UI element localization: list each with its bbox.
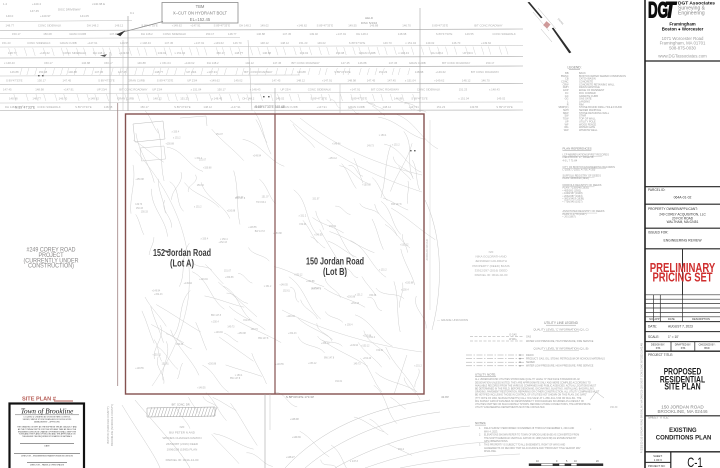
svg-text:QUALITY LEVEL 'C' INFORMATION: QUALITY LEVEL 'C' INFORMATION (Q.L.C): [533, 328, 588, 332]
svg-text:THIS PROPERTY IS SUBJECT T: THIS PROPERTY IS SUBJECT TO ALL EASEMENT…: [484, 444, 565, 447]
svg-text:146.88: 146.88: [297, 70, 306, 74]
svg-text:BE DETERMINED IN THE FIELD.: BE DETERMINED IN THE FIELD. BEFORE DESIG…: [475, 388, 595, 391]
svg-text:x140.98 E: x140.98 E: [92, 2, 105, 6]
svg-text:147.45: 147.45: [273, 61, 282, 65]
svg-text:150.33: 150.33: [176, 344, 184, 346]
svg-text:SCALE:: SCALE:: [648, 335, 659, 339]
svg-text:S 89°47'33"E: S 89°47'33"E: [411, 97, 428, 101]
svg-text:+149.94: +149.94: [332, 144, 341, 146]
svg-text:147.45: 147.45: [30, 9, 39, 13]
svg-text:146.88: 146.88: [262, 51, 271, 55]
svg-text:+153.12: +153.12: [294, 275, 303, 277]
svg-text:+148.98: +148.98: [290, 418, 299, 421]
svg-text:149.02: 149.02: [497, 97, 506, 101]
svg-text:BIT. CONC. DR.: BIT. CONC. DR.: [172, 403, 191, 407]
svg-text:UTILITY NOTE:: UTILITY NOTE:: [475, 373, 496, 377]
svg-text:147.45: 147.45: [63, 79, 72, 83]
svg-text:DIRECTOR – ENGINEERING/TRANS: DIRECTOR – ENGINEERING/TRANSPORTATION DI…: [21, 454, 73, 457]
svg-text:151.23: 151.23: [180, 97, 189, 101]
svg-text:149.73: 149.73: [135, 204, 143, 206]
svg-text:149.02: 149.02: [309, 32, 318, 36]
svg-text:+148.55: +148.55: [135, 368, 144, 370]
svg-text:151.23: 151.23: [437, 105, 446, 109]
svg-text:141.05: 141.05: [80, 14, 89, 18]
svg-text:BIT CONC ROADWAY: BIT CONC ROADWAY: [442, 61, 470, 65]
svg-text:151.07: 151.07: [262, 197, 270, 199]
svg-text:— GRADE UNKNOWN: — GRADE UNKNOWN: [437, 318, 468, 322]
svg-text:ELEVATIONS SHOWN REFER TO: ELEVATIONS SHOWN REFER TO TOWN OF BROOKL…: [484, 434, 579, 437]
svg-text:146.88: 146.88: [10, 70, 19, 74]
svg-text:(Lot B): (Lot B): [323, 267, 347, 278]
svg-text:x 148.43: x 148.43: [4, 61, 15, 65]
svg-text:JENNIFER GOLDRATH: JENNIFER GOLDRATH: [475, 259, 507, 263]
svg-text:CONC SIDEWALK: CONC SIDEWALK: [163, 32, 186, 36]
svg-text:+147.91: +147.91: [322, 79, 333, 83]
svg-text:149.73: 149.73: [251, 329, 259, 331]
svg-text:149.02: 149.02: [300, 51, 309, 55]
svg-text:GRAN CURB: GRAN CURB: [359, 51, 376, 55]
svg-text:149.02: 149.02: [234, 79, 243, 83]
svg-text:+150.88: +150.88: [237, 333, 246, 335]
svg-text:BROOKLINE, MA 02446: BROOKLINE, MA 02446: [657, 409, 707, 414]
svg-text:+150.88: +150.88: [405, 283, 414, 285]
svg-text:149.02: 149.02: [260, 24, 269, 28]
svg-text:+149.94: +149.94: [350, 345, 359, 347]
svg-text:149.73: 149.73: [354, 363, 362, 365]
svg-text:UP 23/4: UP 23/4: [463, 51, 473, 55]
svg-text:DESCRIPTION: DESCRIPTION: [692, 317, 710, 321]
svg-text:148.12: 148.12: [280, 41, 289, 45]
svg-text:x 151.04: x 151.04: [160, 61, 171, 65]
svg-text:+153.12: +153.12: [328, 158, 337, 160]
svg-text:DISC DRIVEWAY: DISC DRIVEWAY: [58, 8, 81, 12]
svg-text:148.98: 148.98: [35, 88, 44, 92]
svg-text:151.23: 151.23: [2, 41, 11, 45]
svg-text:DH 148.2: DH 148.2: [356, 32, 368, 36]
svg-text:ALL UNDERGROUND UTILITIES SHOW: ALL UNDERGROUND UTILITIES SHOWN ARE QUAL…: [475, 378, 580, 381]
svg-text:THE AS-BUILT AS REQUIRED BY BO: THE AS-BUILT AS REQUIRED BY BOARDS OF AP…: [22, 435, 72, 438]
svg-text:UP 23/4: UP 23/4: [186, 70, 196, 74]
svg-text:JORDAN ROAD: JORDAN ROAD: [425, 238, 429, 261]
svg-text:DATE:: DATE:: [648, 325, 657, 329]
svg-text:+149.62: +149.62: [297, 24, 308, 28]
svg-text:CONC SIDEWALK: CONC SIDEWALK: [417, 88, 440, 92]
svg-text:064A-01-02: 064A-01-02: [674, 196, 692, 200]
svg-text:UTILITY ENGINEERING DEPARTME: UTILITY ENGINEERING DEPARTMENTS MUST BE …: [475, 406, 545, 409]
svg-text:DISC 5/4/16: DISC 5/4/16: [361, 21, 378, 25]
svg-text:L-2556, L-2555, A-756, A-355: L-2556, L-2555, A-756, A-355: [563, 169, 596, 172]
svg-text:HELD: HELD: [365, 16, 374, 20]
svg-text:149.02: 149.02: [158, 51, 167, 55]
svg-text:+152.43: +152.43: [154, 294, 163, 296]
svg-text:GRAN CURB: GRAN CURB: [60, 41, 77, 45]
svg-text:150.17: 150.17: [44, 61, 53, 65]
svg-text:x 150.4: x 150.4: [401, 289, 409, 291]
svg-text:146.88: 146.88: [358, 61, 367, 65]
svg-text:x 150.4: x 150.4: [379, 135, 387, 137]
svg-text:146.88: 146.88: [68, 70, 77, 74]
svg-text:C-1: C-1: [687, 454, 703, 468]
svg-text:+147.91: +147.91: [190, 24, 201, 28]
svg-text:147.45: 147.45: [367, 79, 376, 83]
svg-text:x 151.2: x 151.2: [379, 270, 387, 272]
svg-text:x 150.4: x 150.4: [220, 239, 228, 241]
svg-text:CONC SIDEWALK: CONC SIDEWALK: [63, 51, 86, 55]
svg-text:152.61: 152.61: [162, 364, 170, 366]
svg-text:148.77: 148.77: [6, 24, 15, 28]
svg-text:146.70: 146.70: [481, 79, 490, 83]
svg-text:BOSTON (SUFFOLK COUNTY): BOSTON (SUFFOLK COUNTY): [106, 406, 110, 443]
svg-text:150.17: 150.17: [216, 51, 225, 55]
svg-text:DH 148.2: DH 148.2: [239, 24, 251, 28]
svg-text:+148.55: +148.55: [314, 235, 323, 237]
svg-text:ENGINEERING REVIEW: ENGINEERING REVIEW: [663, 239, 702, 243]
svg-text:151.07: 151.07: [216, 134, 224, 136]
svg-text:(Lot A): (Lot A): [170, 259, 194, 270]
svg-text:TBM: TBM: [196, 4, 205, 9]
svg-text:151.2: 151.2: [398, 448, 405, 451]
svg-text:S 89°47'33"E: S 89°47'33"E: [334, 70, 351, 74]
svg-text:PROJECT NO:: PROJECT NO:: [648, 464, 666, 468]
svg-text:+149.62: +149.62: [184, 61, 195, 65]
svg-text:S 89°47'33"E: S 89°47'33"E: [349, 41, 366, 45]
svg-text:NO.: NO.: [649, 317, 654, 321]
svg-text:GRADING, PAVEMENT RESTORATION: GRADING, PAVEMENT RESTORATION, REPAIRING…: [475, 391, 600, 394]
svg-text:148.12: 148.12: [296, 79, 305, 83]
svg-text:150.08: 150.08: [336, 51, 345, 55]
svg-text:NOTES:: NOTES:: [475, 421, 486, 425]
svg-text:ISSUED FOR:: ISSUED FOR:: [648, 231, 668, 235]
svg-text:BW 147.8: BW 147.8: [255, 231, 266, 233]
svg-text:x 151.04: x 151.04: [405, 41, 416, 45]
svg-text:+150.88: +150.88: [363, 336, 372, 338]
svg-text:PROPERTY OWNER/APPLICANT:: PROPERTY OWNER/APPLICANT:: [648, 207, 698, 211]
svg-text:147.45: 147.45: [165, 41, 174, 45]
svg-text:CONC SIDEWALK: CONC SIDEWALK: [308, 88, 331, 92]
svg-text:CONDITIONS PLAN: CONDITIONS PLAN: [656, 434, 712, 441]
svg-text:x 151.2: x 151.2: [355, 295, 363, 297]
svg-text:+150.88: +150.88: [225, 277, 234, 279]
svg-text:N 89°47'33"E: N 89°47'33"E: [15, 106, 36, 110]
svg-text:+150.88: +150.88: [306, 281, 315, 283]
svg-text:DIRECTOR – PARKS & OPEN SPACES: DIRECTOR – PARKS & OPEN SPACES: [30, 463, 65, 466]
svg-text:CONC SIDEWALK: CONC SIDEWALK: [492, 32, 515, 36]
svg-text:QUALITY LEVEL 'B' INFORMATION: QUALITY LEVEL 'B' INFORMATION (Q.L.B): [534, 347, 589, 351]
svg-text:DH 148.2: DH 148.2: [93, 51, 105, 55]
svg-text:x 151.2: x 151.2: [173, 138, 181, 140]
svg-text:148.77: 148.77: [32, 97, 41, 101]
svg-text:x 148.43: x 148.43: [140, 41, 151, 45]
svg-text:Town of Brookline: Town of Brookline: [21, 408, 74, 416]
svg-text:+149.94: +149.94: [253, 156, 262, 158]
svg-text:x 151.2: x 151.2: [392, 145, 400, 147]
svg-text:CONSTRUCTION): CONSTRUCTION): [28, 263, 74, 270]
svg-text:DH 148.2: DH 148.2: [141, 32, 153, 36]
svg-text:1" = 10': 1" = 10': [668, 335, 679, 339]
svg-text:150.33: 150.33: [136, 208, 144, 210]
svg-text:+150.88: +150.88: [362, 184, 371, 186]
svg-text:148.12: 148.12: [260, 41, 269, 45]
svg-text:GPS OBSERVATIONS.: GPS OBSERVATIONS.: [484, 440, 509, 443]
svg-text:+149.62: +149.62: [40, 51, 51, 55]
svg-text:+149.62: +149.62: [210, 79, 221, 83]
svg-text:Boston ● Worcester: Boston ● Worcester: [662, 27, 704, 32]
svg-text:BW 147.8: BW 147.8: [230, 378, 241, 380]
svg-text:x 148.43: x 148.43: [398, 51, 409, 55]
svg-text:UP 23/4: UP 23/4: [97, 88, 107, 92]
svg-text:x 148.43: x 148.43: [212, 97, 223, 101]
svg-text:147.45: 147.45: [389, 61, 398, 65]
svg-text:EL=152.45: EL=152.45: [190, 17, 211, 22]
svg-text:+153.12: +153.12: [321, 343, 330, 345]
svg-text:147.45: 147.45: [341, 61, 350, 65]
svg-text:+149.62: +149.62: [481, 41, 492, 45]
svg-text:x 151.04: x 151.04: [191, 88, 202, 92]
svg-text:148.77: 148.77: [228, 32, 237, 36]
svg-text:149.02: 149.02: [426, 41, 435, 45]
svg-text:BIT CONC ROADWAY: BIT CONC ROADWAY: [292, 61, 320, 65]
svg-text:146.70: 146.70: [59, 97, 68, 101]
svg-text:+147.91: +147.91: [194, 41, 205, 45]
svg-text:DESIGN BY:: DESIGN BY:: [651, 343, 665, 346]
svg-text:148.98: 148.98: [347, 79, 356, 83]
svg-text:+149.62: +149.62: [434, 79, 445, 83]
svg-text:+149.62: +149.62: [436, 70, 447, 74]
svg-text:148.12: 148.12: [383, 105, 392, 109]
svg-text:148.12: 148.12: [115, 24, 124, 28]
svg-text:150.33: 150.33: [197, 185, 205, 187]
svg-text:GRAN CURB: GRAN CURB: [409, 61, 426, 65]
svg-text:S 89°47'33"E: S 89°47'33"E: [6, 79, 23, 83]
svg-text:148.77: 148.77: [235, 51, 244, 55]
svg-text:147.45: 147.45: [118, 70, 127, 74]
svg-text:Engineering: Engineering: [678, 11, 705, 17]
svg-text:+148.55: +148.55: [248, 227, 257, 229]
svg-text:+148.55: +148.55: [197, 388, 206, 390]
svg-text:150.33: 150.33: [369, 295, 377, 297]
svg-text:THE NORTH AMERICAN VERTICAL: THE NORTH AMERICAN VERTICAL DATUM OF 198…: [484, 437, 577, 440]
svg-text:BW 147.8: BW 147.8: [324, 357, 335, 359]
svg-text:149.55: 149.55: [348, 24, 357, 28]
svg-text:WINNES CHARLES RAMON: WINNES CHARLES RAMON: [162, 436, 201, 440]
svg-text:150.17: 150.17: [37, 79, 46, 83]
svg-text:AVAILABLE RECORDS FROM THE VAR: AVAILABLE RECORDS FROM THE VARIOUS COMPA…: [475, 384, 597, 387]
svg-text:x 150.4: x 150.4: [172, 131, 180, 133]
svg-text:151.23: 151.23: [299, 41, 308, 45]
svg-text:PROJECT TITLE:: PROJECT TITLE:: [648, 353, 673, 357]
svg-text:+149.62: +149.62: [89, 97, 100, 101]
svg-text:PJS: PJS: [681, 347, 686, 350]
svg-text:146.88: 146.88: [82, 61, 91, 65]
svg-text:S 89°47'33"E: S 89°47'33"E: [98, 79, 115, 83]
svg-text:x 147.3: x 147.3: [350, 460, 359, 463]
svg-text:BUI PETER N AND: BUI PETER N AND: [169, 431, 196, 435]
svg-text:x 150.4: x 150.4: [345, 325, 353, 327]
svg-text:4 6 L 7: 4 6 L 7 71-84: [563, 159, 578, 162]
svg-text:+150.88: +150.88: [227, 210, 236, 212]
svg-text:x 151.2: x 151.2: [312, 288, 320, 290]
svg-text:UP 23/4: UP 23/4: [152, 88, 162, 92]
svg-text:140.0: 140.0: [6, 14, 14, 18]
svg-text:151.23: 151.23: [459, 88, 468, 92]
svg-text:SITE PLAN: SITE PLAN: [664, 382, 700, 392]
svg-text:146.70: 146.70: [233, 41, 242, 45]
svg-text:+147.91: +147.91: [64, 88, 75, 92]
svg-text:BW 147.8: BW 147.8: [258, 338, 269, 340]
svg-text:+149.94: +149.94: [152, 291, 161, 293]
svg-text:+148.55: +148.55: [275, 364, 284, 366]
svg-text:PLAN REFERENCES: PLAN REFERENCES: [563, 147, 592, 151]
svg-text:+152.43: +152.43: [351, 303, 360, 305]
svg-text:146.70: 146.70: [452, 41, 461, 45]
svg-text:+147.91: +147.91: [207, 70, 218, 74]
svg-text:GAS: GAS: [526, 335, 531, 338]
svg-text:DATE: DATE: [668, 317, 675, 321]
svg-text:146.70: 146.70: [383, 41, 392, 45]
svg-text:PARCEL ID:: PARCEL ID:: [648, 188, 665, 192]
svg-text:FIELD SURVEY PERFORMED: NOV: FIELD SURVEY PERFORMED: NOVEMBER 28 THRO…: [484, 427, 574, 430]
svg-text:x 148.43: x 148.43: [489, 88, 500, 92]
svg-text:x 151.2: x 151.2: [299, 215, 307, 217]
svg-text:+150.88: +150.88: [347, 297, 356, 299]
svg-text:S 89°47'33"E: S 89°47'33"E: [311, 97, 328, 101]
svg-text:DH 148.2: DH 148.2: [243, 97, 255, 101]
svg-text:PJS: PJS: [656, 347, 661, 350]
svg-text:508-875-0030: 508-875-0030: [669, 45, 696, 50]
svg-text:147.45: 147.45: [272, 79, 281, 83]
svg-text:CONC SIDEWALK: CONC SIDEWALK: [37, 105, 60, 109]
svg-text:150.08: 150.08: [39, 70, 48, 74]
svg-text:149.55: 149.55: [120, 41, 129, 45]
svg-text:S 89°47'33"E: S 89°47'33"E: [174, 105, 191, 109]
svg-text:S 88°00'19"E 173.33': S 88°00'19"E 173.33': [286, 395, 315, 399]
svg-text:x 148.43: x 148.43: [250, 88, 261, 92]
svg-text:147.45: 147.45: [3, 88, 12, 92]
svg-text:DRAIN: DRAIN: [526, 354, 534, 357]
svg-text:WATER LOW PRESSURE, HIGH PRESS: WATER LOW PRESSURE, HIGH PRESSURE, FIRE …: [526, 365, 594, 368]
svg-text:+150.88: +150.88: [135, 179, 144, 181]
svg-text:DATE: DATE: [44, 444, 50, 447]
svg-text:149.55: 149.55: [465, 32, 474, 36]
svg-text:BIT CONC ROADWAY: BIT CONC ROADWAY: [119, 88, 147, 92]
svg-text:+153.12: +153.12: [400, 244, 409, 246]
svg-text:SHEET:: SHEET:: [653, 454, 662, 458]
svg-text:BROOKLINE (NORFOLK COUNTY): BROOKLINE (NORFOLK COUNTY): [110, 404, 114, 446]
svg-text:43.80': 43.80': [441, 395, 450, 399]
svg-text:x 151.04: x 151.04: [458, 97, 469, 101]
svg-text:SITE PLAN #: SITE PLAN #: [22, 397, 57, 403]
svg-text:PRODUCT: GAS, OIL, STEAM, PETR: PRODUCT: GAS, OIL, STEAM, PETROLEUM OR N…: [526, 357, 605, 360]
svg-text:DH 148.2: DH 148.2: [431, 51, 443, 55]
svg-text:UTILITY LINE LEGEND: UTILITY LINE LEGEND: [544, 321, 578, 325]
svg-text:146.88: 146.88: [137, 61, 146, 65]
svg-text:WW: WW: [564, 129, 569, 132]
svg-text:BW 147.8: BW 147.8: [391, 204, 402, 206]
svg-text:DESIGNATION UNLESS NOTED. T: DESIGNATION UNLESS NOTED. THEY ARE APPRO…: [475, 381, 591, 384]
svg-text:+153.12: +153.12: [308, 363, 317, 365]
svg-text:+149.94: +149.94: [286, 316, 295, 318]
svg-text:BW 147.8: BW 147.8: [211, 315, 222, 317]
svg-text:PROPERTY (DEED) BASIS: PROPERTY (DEED) BASIS: [472, 264, 509, 268]
svg-text:BE NOTIFIED INCLUDING THOSE: BE NOTIFIED INCLUDING THOSE IN CONTROL O…: [475, 394, 587, 397]
svg-text:+152.43: +152.43: [288, 333, 297, 335]
svg-text:BKD: BKD: [704, 347, 709, 350]
svg-text:148.98: 148.98: [9, 97, 18, 101]
svg-text:150 Jordan Road: 150 Jordan Road: [306, 257, 364, 268]
svg-text:+150.88: +150.88: [203, 168, 212, 170]
svg-text:1.4: 1.4: [3, 2, 7, 6]
svg-text:GRAN CURB: GRAN CURB: [128, 79, 145, 83]
svg-text:+149.62: +149.62: [214, 41, 225, 45]
svg-text:T: T: [665, 0, 677, 23]
svg-text:x 151.2: x 151.2: [194, 206, 202, 208]
svg-text:+149.94: +149.94: [199, 279, 208, 281]
svg-text:+148.27: +148.27: [286, 456, 295, 459]
svg-text:S 89°47'33"E: S 89°47'33"E: [351, 97, 368, 101]
svg-text:X–CUT ON HYDRANT BOLT: X–CUT ON HYDRANT BOLT: [173, 11, 228, 16]
svg-text:www.DGTassociates.com: www.DGTassociates.com: [658, 53, 707, 58]
svg-text:UP 23/4: UP 23/4: [187, 79, 197, 83]
svg-text:CHECKED BY:: CHECKED BY:: [699, 343, 716, 346]
svg-text:EXISTING: EXISTING: [669, 427, 697, 434]
svg-text:148.77: 148.77: [8, 51, 17, 55]
svg-text:+149.62: +149.62: [172, 24, 183, 28]
svg-text:147.45: 147.45: [283, 32, 292, 36]
svg-text:+147.91: +147.91: [336, 32, 347, 36]
svg-text:1996/208 (1995) PLAN: 1996/208 (1995) PLAN: [167, 447, 198, 451]
svg-text:G GAS: G GAS: [509, 334, 517, 337]
svg-text:+152.43: +152.43: [363, 358, 372, 360]
svg-text:DH 148.2: DH 148.2: [207, 61, 219, 65]
svg-text:148.98: 148.98: [104, 105, 113, 109]
svg-text:PRICING SET: PRICING SET: [653, 270, 713, 284]
svg-text:x 150.4: x 150.4: [235, 375, 243, 377]
svg-text:N/F: N/F: [180, 425, 185, 429]
svg-text:x 151.04: x 151.04: [175, 51, 186, 55]
svg-text:UTILITIES OMITTED OR INACCU: UTILITIES OMITTED OR INACCURATELY SHOWN.…: [475, 403, 591, 406]
svg-text:150.17: 150.17: [104, 61, 113, 65]
svg-text:3.: 3.: [479, 445, 481, 447]
svg-text:+150.88: +150.88: [208, 364, 217, 366]
svg-text:149.02: 149.02: [317, 41, 326, 45]
svg-text:150.17: 150.17: [206, 32, 215, 36]
svg-text:150.39: 150.39: [610, 406, 618, 409]
svg-text:DISCLOSE.: DISCLOSE.: [484, 451, 497, 453]
svg-text:BIT CONC ROADWAY: BIT CONC ROADWAY: [371, 88, 399, 92]
svg-text:• 7756/345 (1927): • 7756/345 (1927): [563, 200, 583, 203]
svg-text:x 151.2: x 151.2: [264, 286, 272, 288]
svg-text:MAY 4, 2023.: MAY 4, 2023.: [484, 430, 498, 433]
svg-text:+147.91: +147.91: [230, 105, 241, 109]
svg-text:+149.94: +149.94: [184, 283, 193, 285]
svg-text:+152.43: +152.43: [219, 242, 228, 244]
svg-text:151.07: 151.07: [199, 160, 207, 162]
svg-text:UP 23/4: UP 23/4: [281, 88, 291, 92]
svg-text:152 Jordan Road: 152 Jordan Road: [153, 248, 211, 259]
svg-text:151.07: 151.07: [224, 271, 232, 273]
svg-text:CONC SIDEWALK: CONC SIDEWALK: [27, 41, 50, 45]
svg-text:+153.12: +153.12: [152, 354, 161, 356]
svg-text:WATER LOW PRESSURE, HIGH PRESS: WATER LOW PRESSURE, HIGH PRESSURE, FIRE …: [526, 340, 594, 343]
svg-text:+147.91: +147.91: [317, 105, 328, 109]
svg-text:+140.4: +140.4: [32, 2, 41, 6]
svg-text:150.33: 150.33: [141, 211, 149, 213]
svg-text:+147.91: +147.91: [87, 41, 98, 45]
svg-text:+149.36: +149.36: [292, 436, 301, 439]
svg-text:148.12: 148.12: [153, 97, 162, 101]
svg-text:147.45: 147.45: [95, 70, 104, 74]
svg-text:1.: 1.: [479, 428, 481, 430]
